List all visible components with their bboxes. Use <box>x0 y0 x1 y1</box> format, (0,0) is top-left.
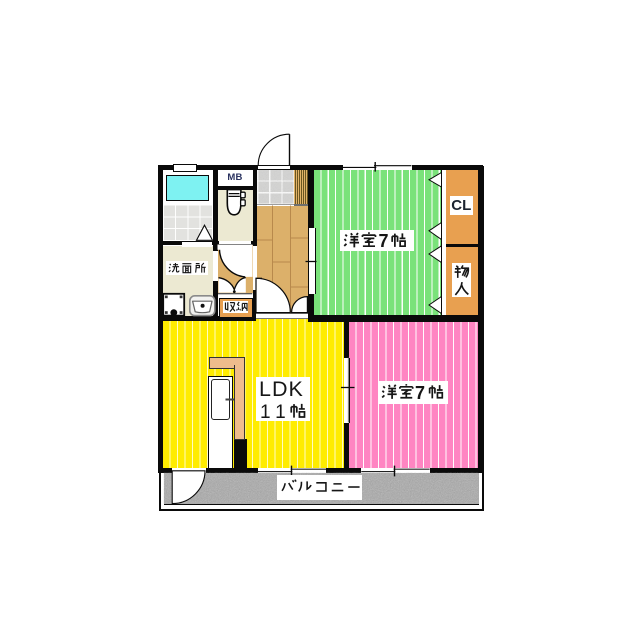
svg-text:7: 7 <box>415 383 425 403</box>
svg-text:7: 7 <box>379 231 389 251</box>
svg-text:11: 11 <box>260 402 292 421</box>
